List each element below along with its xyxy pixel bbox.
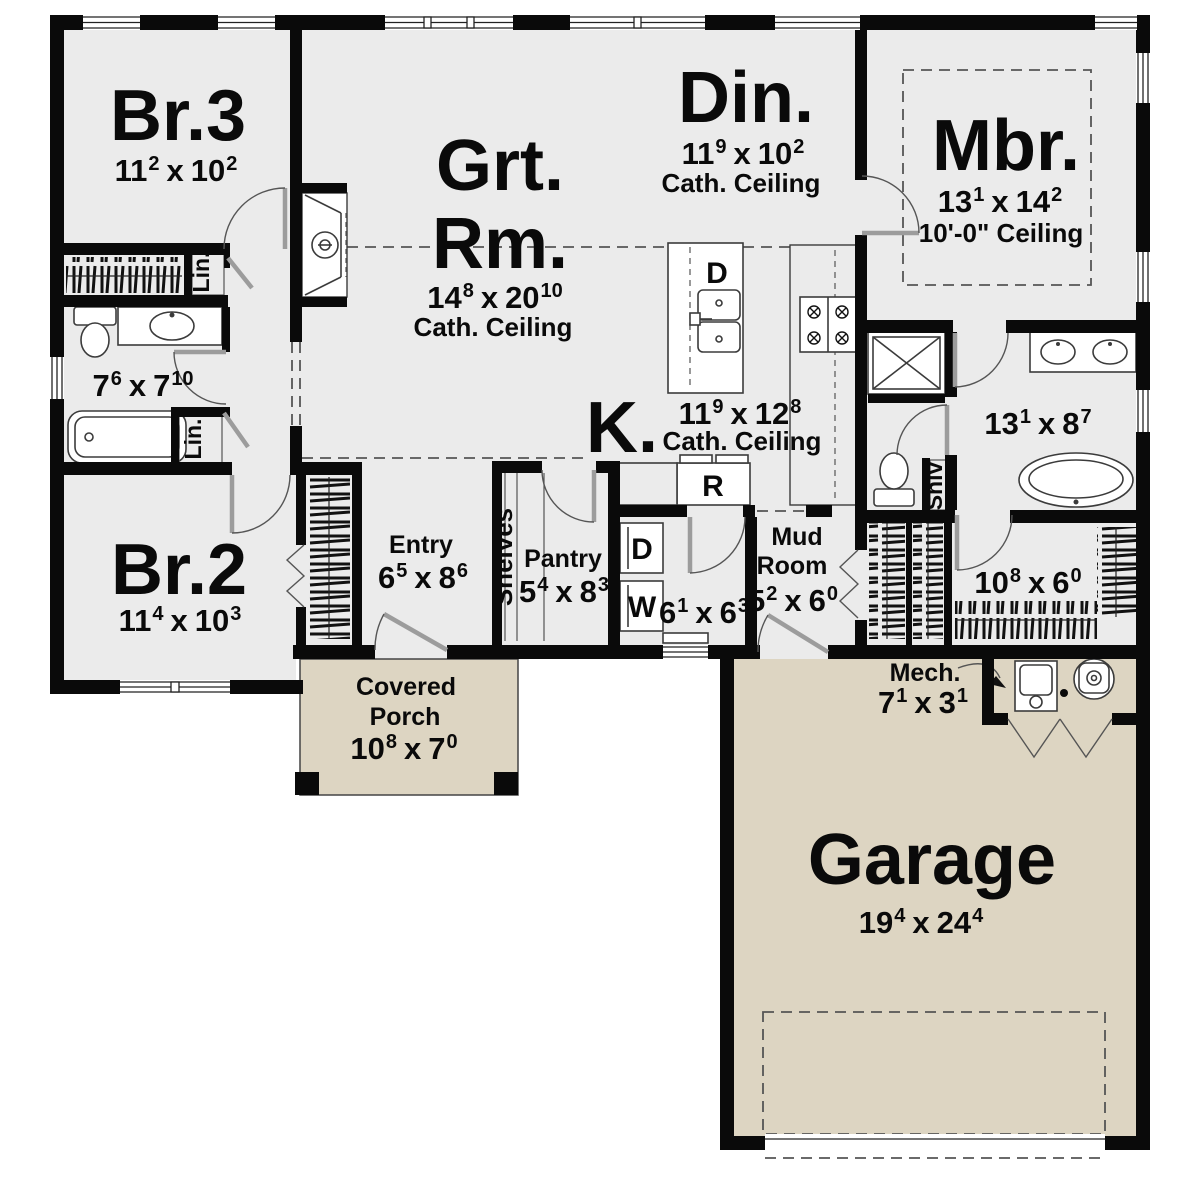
porch-post (295, 772, 319, 795)
master-bath-dimensions: 131x87 (984, 406, 1091, 441)
br3-closet-hangers (66, 257, 182, 293)
fireplace (302, 183, 347, 307)
refrigerator-label: R (702, 470, 724, 503)
shower (868, 332, 945, 394)
window (775, 15, 860, 30)
laundry-sill (663, 633, 708, 643)
entry-dimensions: 65x86 (378, 560, 468, 595)
window (120, 680, 230, 694)
mbr-label: Mbr. (932, 106, 1080, 186)
grt-rm-label-line1: Grt. (436, 126, 564, 206)
hall-bath-vanity (118, 307, 222, 345)
linen1-label: Lin. (188, 252, 214, 293)
floor-drain (1060, 689, 1068, 697)
din-label: Din. (678, 58, 814, 138)
laundry-dimensions: 61x63 (659, 595, 749, 630)
mudroom-label-line2: Room (757, 552, 828, 580)
window (50, 357, 64, 399)
garage-door (765, 1134, 1105, 1158)
window (1136, 252, 1150, 302)
pantry-dimensions: 54x83 (519, 574, 609, 609)
kitchen-cabinet (615, 463, 677, 505)
br2-floor-extension (64, 645, 296, 680)
window (1095, 15, 1137, 30)
dryer-label: D (631, 533, 653, 566)
br2-dimensions: 114x103 (119, 603, 242, 638)
br3-dimensions: 112x102 (115, 153, 238, 188)
br3-label: Br.3 (110, 76, 246, 156)
pantry-label: Pantry (524, 545, 602, 573)
shlv-label: Shlv (921, 462, 947, 511)
br2-closet-hangers (308, 477, 350, 639)
grt-rm-label-line2: Rm. (432, 204, 568, 284)
range (800, 297, 857, 352)
garage-label: Garage (808, 820, 1056, 900)
br2-label: Br.2 (111, 530, 247, 610)
window (83, 15, 140, 30)
din-dimensions: 119x102 (682, 136, 805, 171)
entry-label: Entry (389, 531, 453, 559)
water-heater (1074, 659, 1114, 699)
porch-post (494, 772, 518, 795)
porch-dimensions: 108x70 (350, 731, 457, 766)
mudroom-dimensions: 52x60 (748, 583, 838, 618)
din-ceiling-note: Cath. Ceiling (662, 168, 821, 198)
porch-label-line1: Covered (356, 673, 456, 701)
porch-label-line2: Porch (370, 703, 441, 731)
shelves-label: Shelves (488, 508, 518, 606)
window (570, 15, 705, 30)
hall-bathtub (68, 411, 186, 463)
dishwasher-label: D (706, 257, 728, 290)
grt-rm-ceiling-note: Cath. Ceiling (414, 312, 573, 342)
freestanding-tub (1019, 453, 1133, 507)
mech-dimensions: 71x31 (878, 685, 968, 720)
garage-dimensions: 194x244 (859, 905, 984, 940)
window (218, 15, 275, 30)
furnace (1015, 661, 1057, 711)
wic-dimensions: 108x60 (974, 565, 1081, 600)
washer-label: W (628, 591, 657, 624)
window (385, 15, 513, 30)
kitchen-ceiling-note: Cath. Ceiling (663, 426, 822, 456)
window (663, 645, 708, 659)
window (1136, 53, 1150, 103)
floor-plan-page: Br.3 112x102 Grt. Rm. 148x2010 Cath. Cei… (0, 0, 1200, 1189)
kitchen-label: K. (586, 388, 658, 468)
floor-plan-canvas: Br.3 112x102 Grt. Rm. 148x2010 Cath. Cei… (0, 0, 1200, 1189)
kitchen-counter (790, 245, 857, 505)
mech-label: Mech. (890, 659, 961, 687)
master-vanity (1030, 332, 1136, 372)
mudroom-label-line1: Mud (771, 523, 822, 551)
mbr-ceiling-note: 10'-0" Ceiling (919, 218, 1083, 248)
window (1136, 390, 1150, 432)
mbr-dimensions: 131x142 (938, 184, 1062, 219)
linen2-label: Lin. (180, 419, 206, 460)
